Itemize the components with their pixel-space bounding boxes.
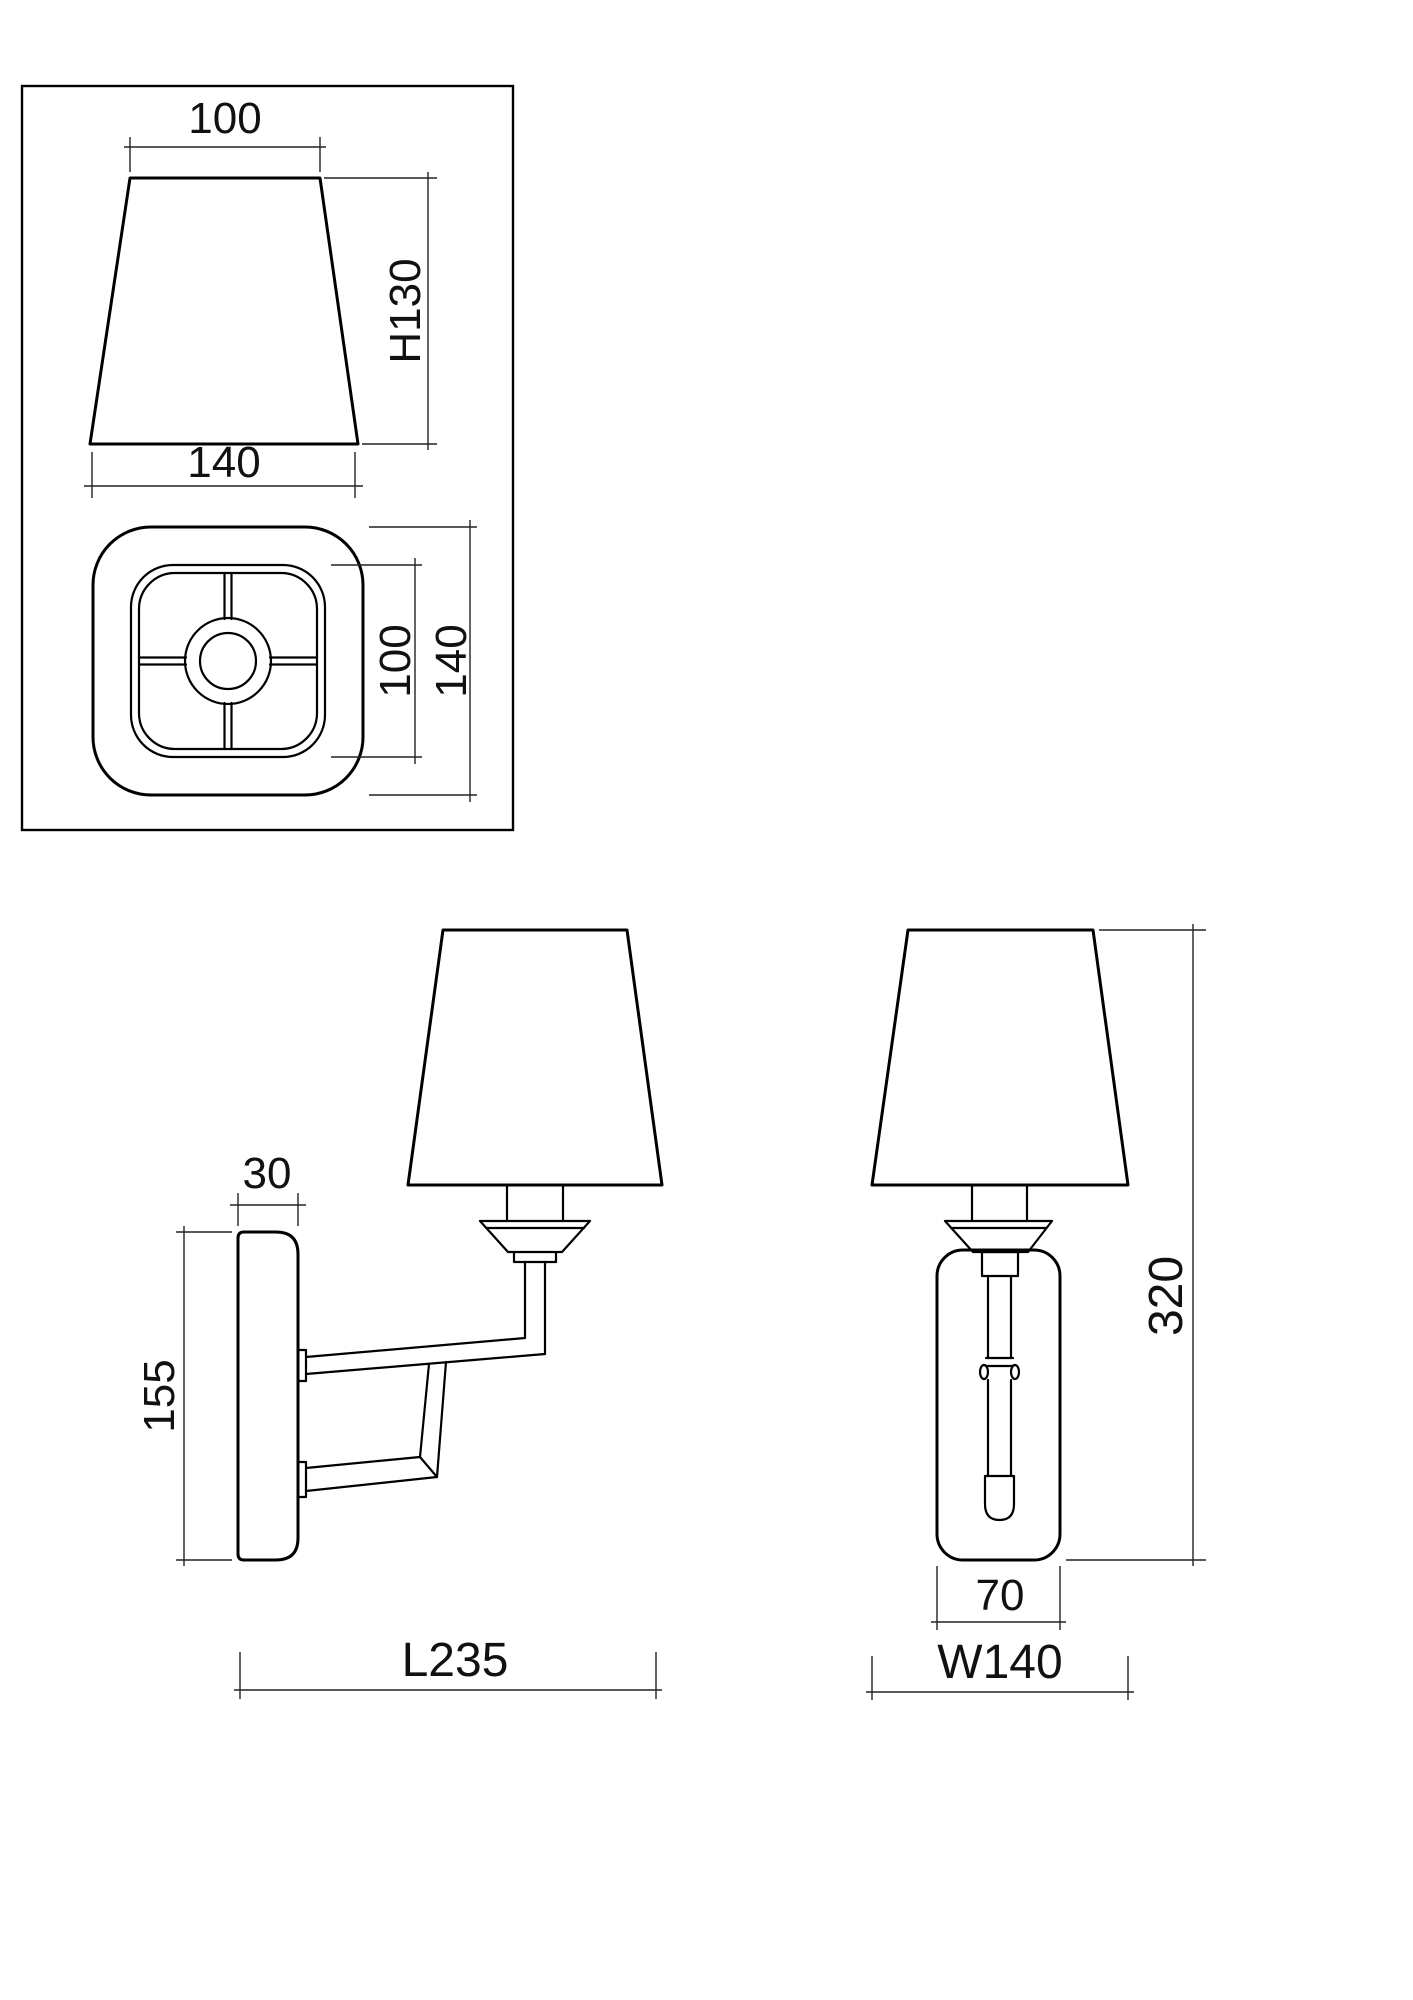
dim-label-shade-height: H130 xyxy=(381,258,430,363)
dim-label-overall-height: 320 xyxy=(1140,1256,1193,1336)
side-backplate xyxy=(238,1232,298,1560)
sconce-front-view: 320 70 W140 xyxy=(866,924,1206,1700)
dim-label-backplate-depth: 30 xyxy=(243,1149,292,1198)
side-arm-bracket xyxy=(306,1262,545,1491)
lampshade-outline xyxy=(90,178,358,444)
side-shade-neck xyxy=(507,1185,563,1221)
stem-tube xyxy=(986,1276,1013,1476)
top-view-ring-inner xyxy=(200,633,256,689)
front-stem xyxy=(980,1252,1019,1520)
dim-label-shade-top-width: 100 xyxy=(188,94,261,143)
stem-joint-right xyxy=(1011,1365,1019,1379)
top-view-cross-spokes xyxy=(139,573,317,749)
top-view-frame-outer xyxy=(131,565,325,757)
technical-drawing-sheet: 100 H130 140 100 140 xyxy=(0,0,1413,2000)
lampshade-top-view: 100 140 xyxy=(93,520,477,802)
front-shade-outline xyxy=(872,930,1128,1185)
dim-lines-overall-height xyxy=(1066,924,1206,1566)
front-shade-neck xyxy=(972,1185,1027,1221)
front-backplate xyxy=(937,1250,1060,1560)
stem-end-cap xyxy=(985,1476,1014,1520)
front-candle-cup xyxy=(945,1221,1052,1252)
stem-collar xyxy=(982,1252,1018,1276)
sconce-side-view: 30 155 L235 xyxy=(135,930,662,1699)
top-view-outer-shade xyxy=(93,527,363,795)
stem-joint-left xyxy=(980,1365,988,1379)
dim-label-projection: L235 xyxy=(402,1634,509,1687)
side-shade-outline xyxy=(408,930,662,1185)
dim-lines-backplate-height xyxy=(176,1226,232,1566)
dim-label-shade-bottom-width: 140 xyxy=(187,438,260,487)
detail-box-frame xyxy=(22,86,513,830)
dim-label-topview-inner: 100 xyxy=(371,624,420,697)
wall-sconce-dimension-drawing: 100 H130 140 100 140 xyxy=(0,0,1413,2000)
top-view-ring-outer xyxy=(185,618,271,704)
side-candle-cup xyxy=(480,1221,590,1262)
detail-box: 100 H130 140 100 140 xyxy=(22,86,513,830)
dim-label-backplate-height: 155 xyxy=(135,1359,184,1432)
dim-label-backplate-width: 70 xyxy=(976,1571,1025,1620)
dim-label-topview-outer: 140 xyxy=(427,624,476,697)
lampshade-front-view: 100 H130 140 xyxy=(84,94,437,498)
top-view-frame-inner xyxy=(139,573,317,749)
dim-label-overall-width: W140 xyxy=(937,1636,1062,1689)
